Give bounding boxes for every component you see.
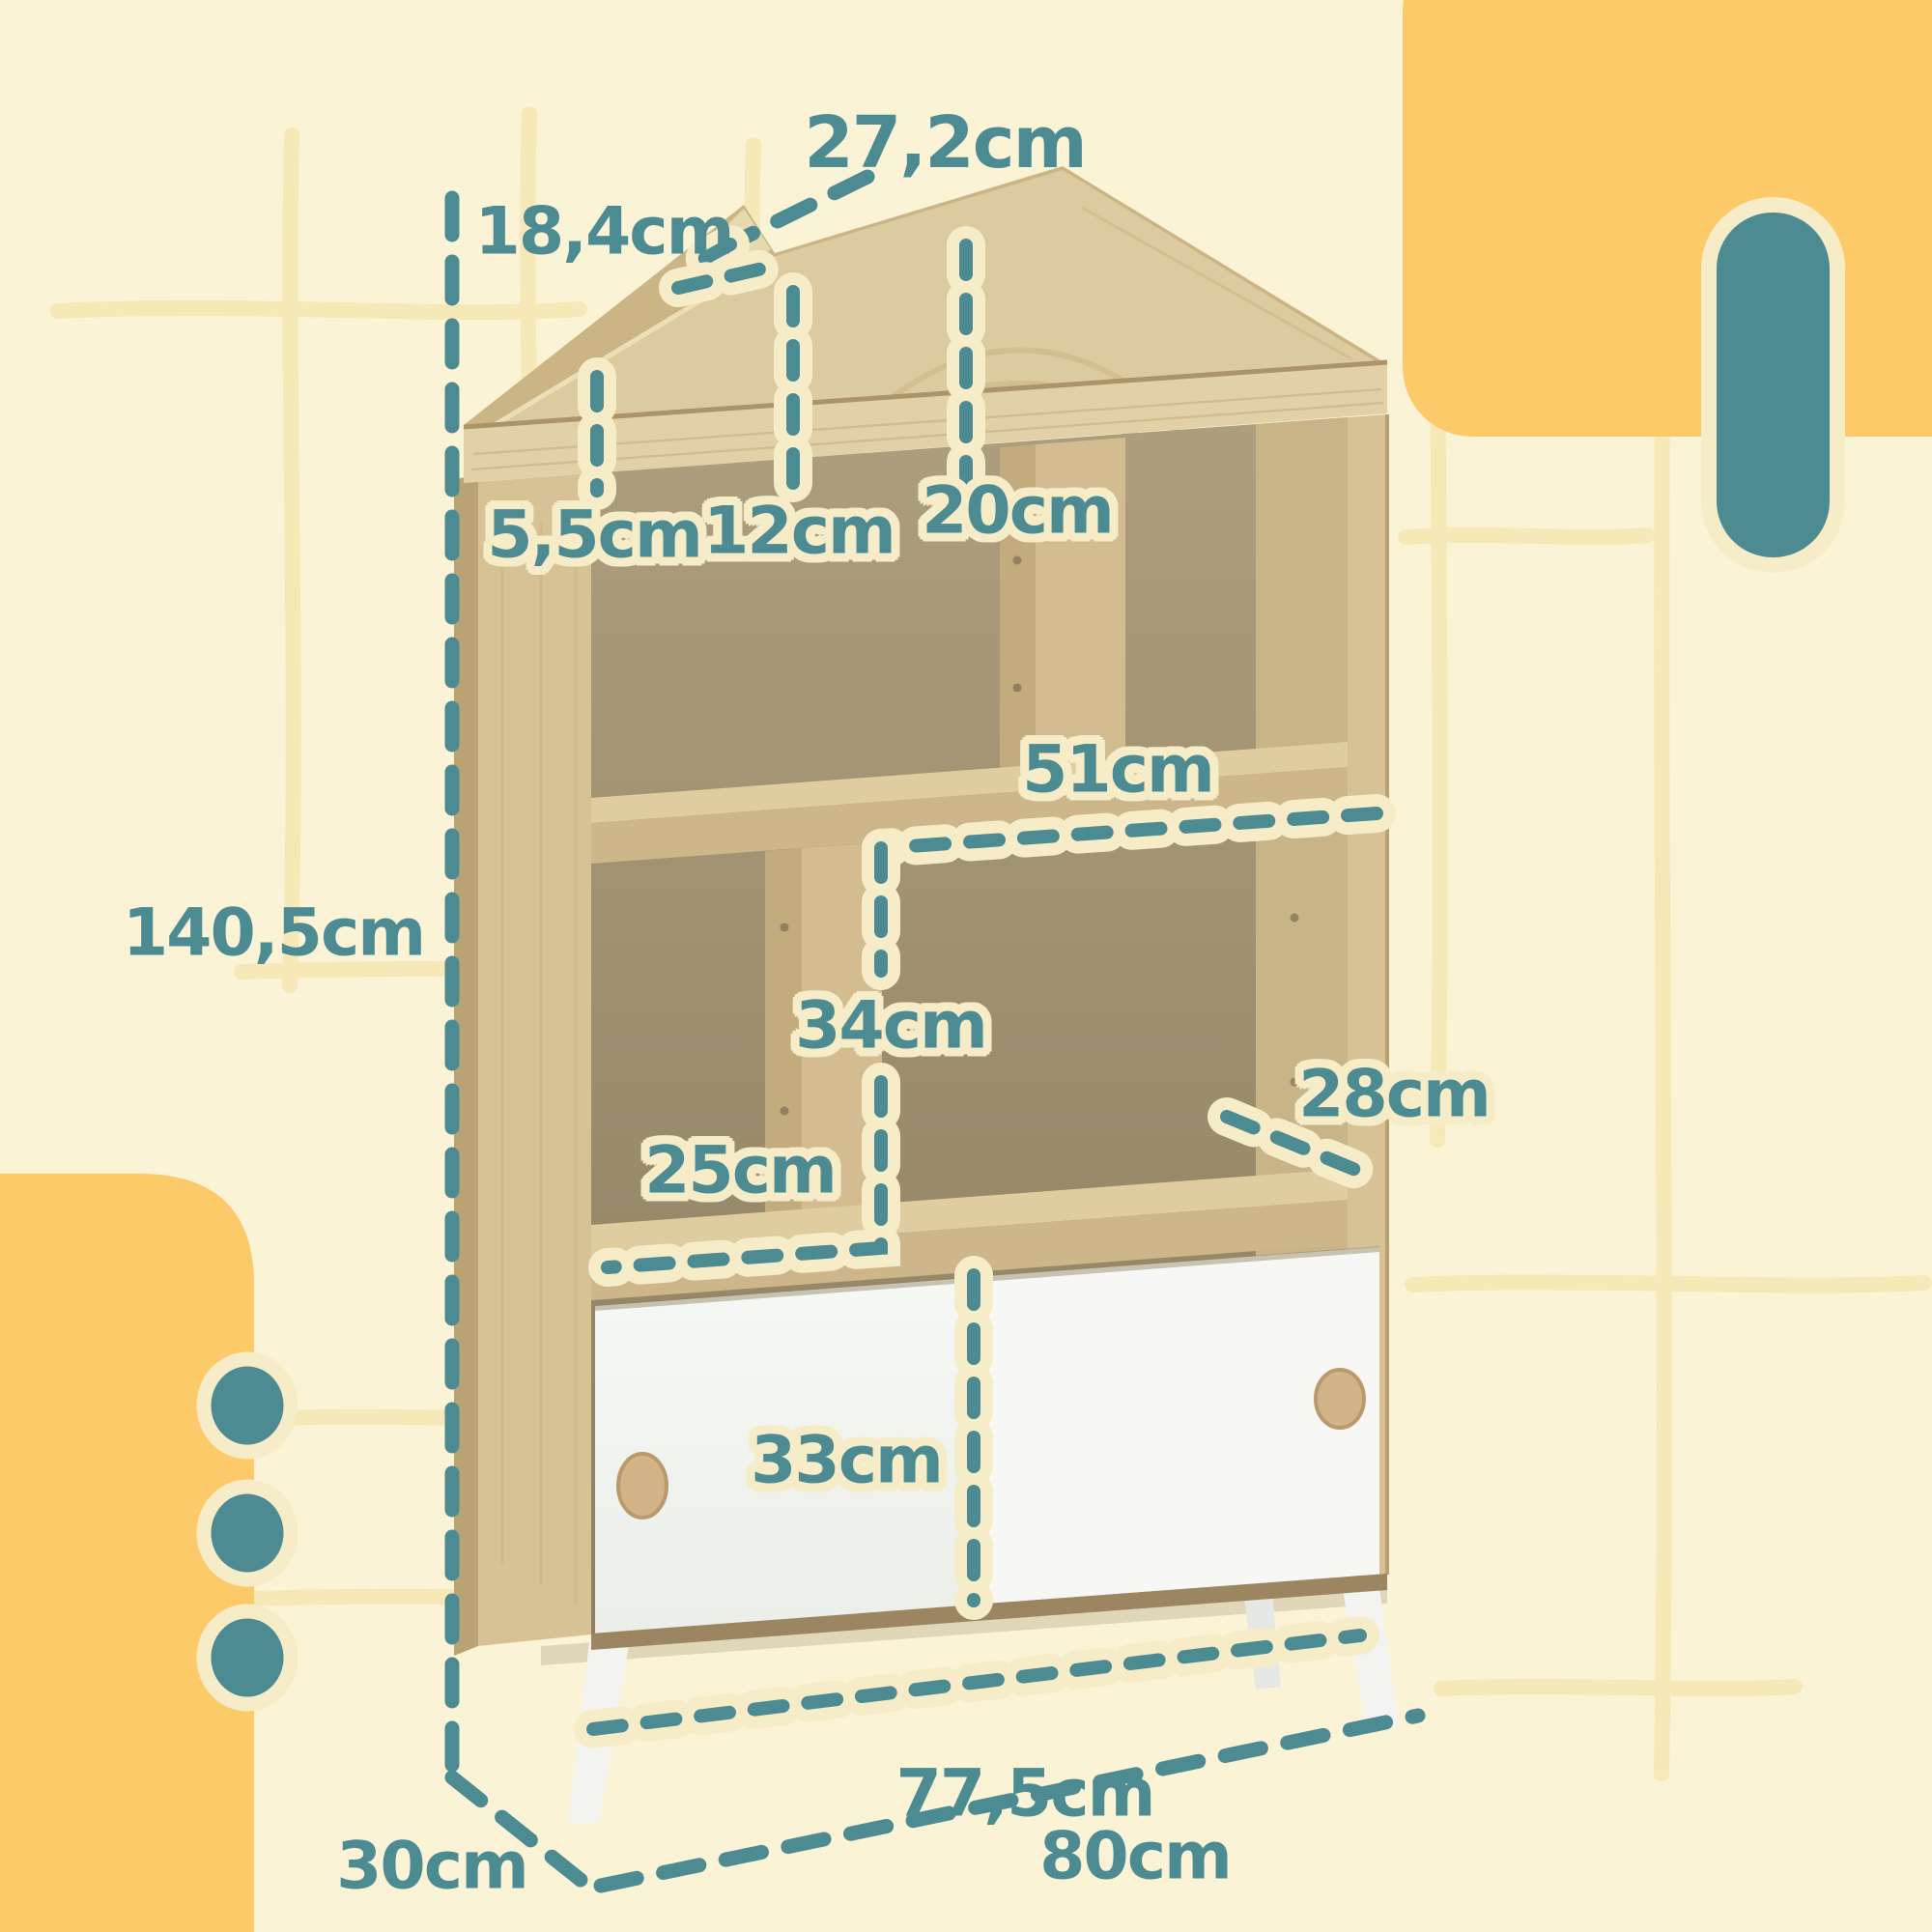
dim-label-140-5cm: 140,5cm (123, 895, 424, 972)
dim-label-20cm: 20cm (922, 473, 1113, 550)
dim-label-27-2cm: 27,2cm (804, 101, 1086, 185)
dim-label-12cm: 12cm (703, 494, 895, 570)
dim-label-30cm: 30cm (336, 1829, 527, 1905)
dim-label-5-5cm: 5,5cm (487, 497, 701, 574)
stile-left (478, 473, 591, 1646)
sliding-door-right (974, 1247, 1379, 1605)
door-knob-right (1316, 1370, 1364, 1428)
corner-rect-top-right (1403, 0, 1932, 437)
door-knob-left (618, 1454, 667, 1518)
dim-label-33cm: 33cm (751, 1423, 942, 1499)
dim-label-25cm: 25cm (644, 1133, 836, 1209)
accent-dot-icon (204, 1359, 291, 1452)
accent-capsule-icon (1709, 205, 1837, 565)
accent-dot-icon (204, 1487, 291, 1579)
dim-label-51cm: 51cm (1022, 732, 1213, 809)
dim-label-80cm: 80cm (1039, 1819, 1231, 1895)
dim-label-34cm: 34cm (795, 988, 986, 1065)
dim-label-18-4cm: 18,4cm (475, 194, 733, 270)
dimension-infographic: 27,2cm 18,4cm 5,5cm 12cm 20cm 51cm 140,5… (0, 0, 1932, 1932)
accent-dot-icon (204, 1611, 291, 1704)
dim-label-28cm: 28cm (1298, 1057, 1490, 1133)
